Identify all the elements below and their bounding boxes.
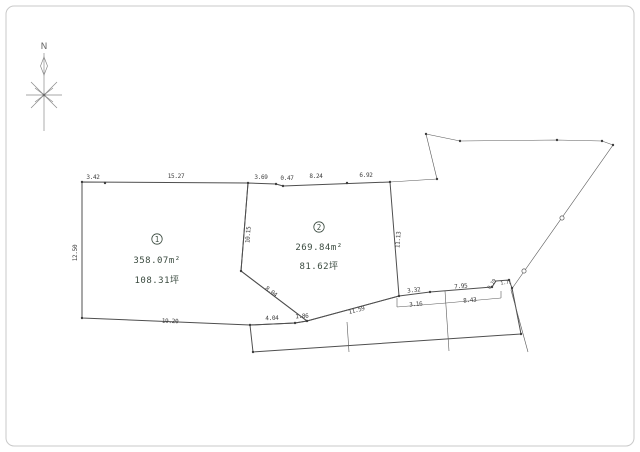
dim-top-6: 6.92: [359, 172, 373, 179]
plot-plan-svg: N: [0, 0, 640, 452]
dim-top-4: 0.47: [280, 175, 294, 182]
dim-road-mid-1: 3.16: [409, 300, 423, 308]
dim-left: 12.50: [72, 244, 79, 261]
dim-road-corner-2: 1.71: [500, 279, 512, 286]
dim-top-3: 3.69: [254, 174, 268, 181]
north-label: N: [41, 42, 48, 52]
dim-top-1: 3.42: [86, 174, 100, 181]
dim-top-5: 8.24: [309, 173, 323, 180]
parcel-1-shape: [82, 182, 307, 325]
parcel-2-number: 2: [317, 223, 322, 232]
dimension-labels-sides: 12.50 10.15 8.04 11.13: [72, 226, 403, 299]
adjacent-boundary-line: [390, 134, 613, 352]
dim-road-corner-1: 0.19: [487, 278, 498, 291]
dim-bottom-3: 1.86: [295, 313, 309, 321]
parcel-1-area-sqm: 358.07m²: [133, 256, 180, 266]
compass-rose: N: [26, 42, 62, 131]
dim-divider: 10.15: [244, 226, 252, 244]
survey-drawing: N: [0, 0, 640, 452]
parcel-1-number: 1: [155, 235, 160, 244]
dim-top-2: 15.27: [168, 173, 185, 180]
dim-road-top-2: 7.95: [454, 282, 468, 290]
dim-right: 11.13: [394, 231, 402, 249]
parcel-1-area-tsubo: 108.31坪: [134, 275, 179, 286]
parcel-2-area-sqm: 269.84m²: [295, 243, 342, 253]
dim-diagonal: 8.04: [264, 285, 279, 299]
dim-bottom-4: 11.59: [348, 305, 366, 316]
road-shape: [250, 280, 521, 352]
road-internal-lines: [347, 291, 501, 352]
dimension-labels-top: 3.42 15.27 3.69 0.47 8.24 6.92: [86, 172, 373, 182]
dim-road-mid-2: 8.43: [463, 296, 477, 304]
parcel-1-labels: 1 358.07m² 108.31坪: [133, 234, 180, 286]
parcel-2-area-tsubo: 81.62坪: [299, 261, 338, 272]
dim-bottom-1: 19.20: [162, 318, 179, 326]
parcel-2-labels: 2 269.84m² 81.62坪: [295, 222, 342, 272]
dim-bottom-2: 4.04: [265, 315, 279, 322]
